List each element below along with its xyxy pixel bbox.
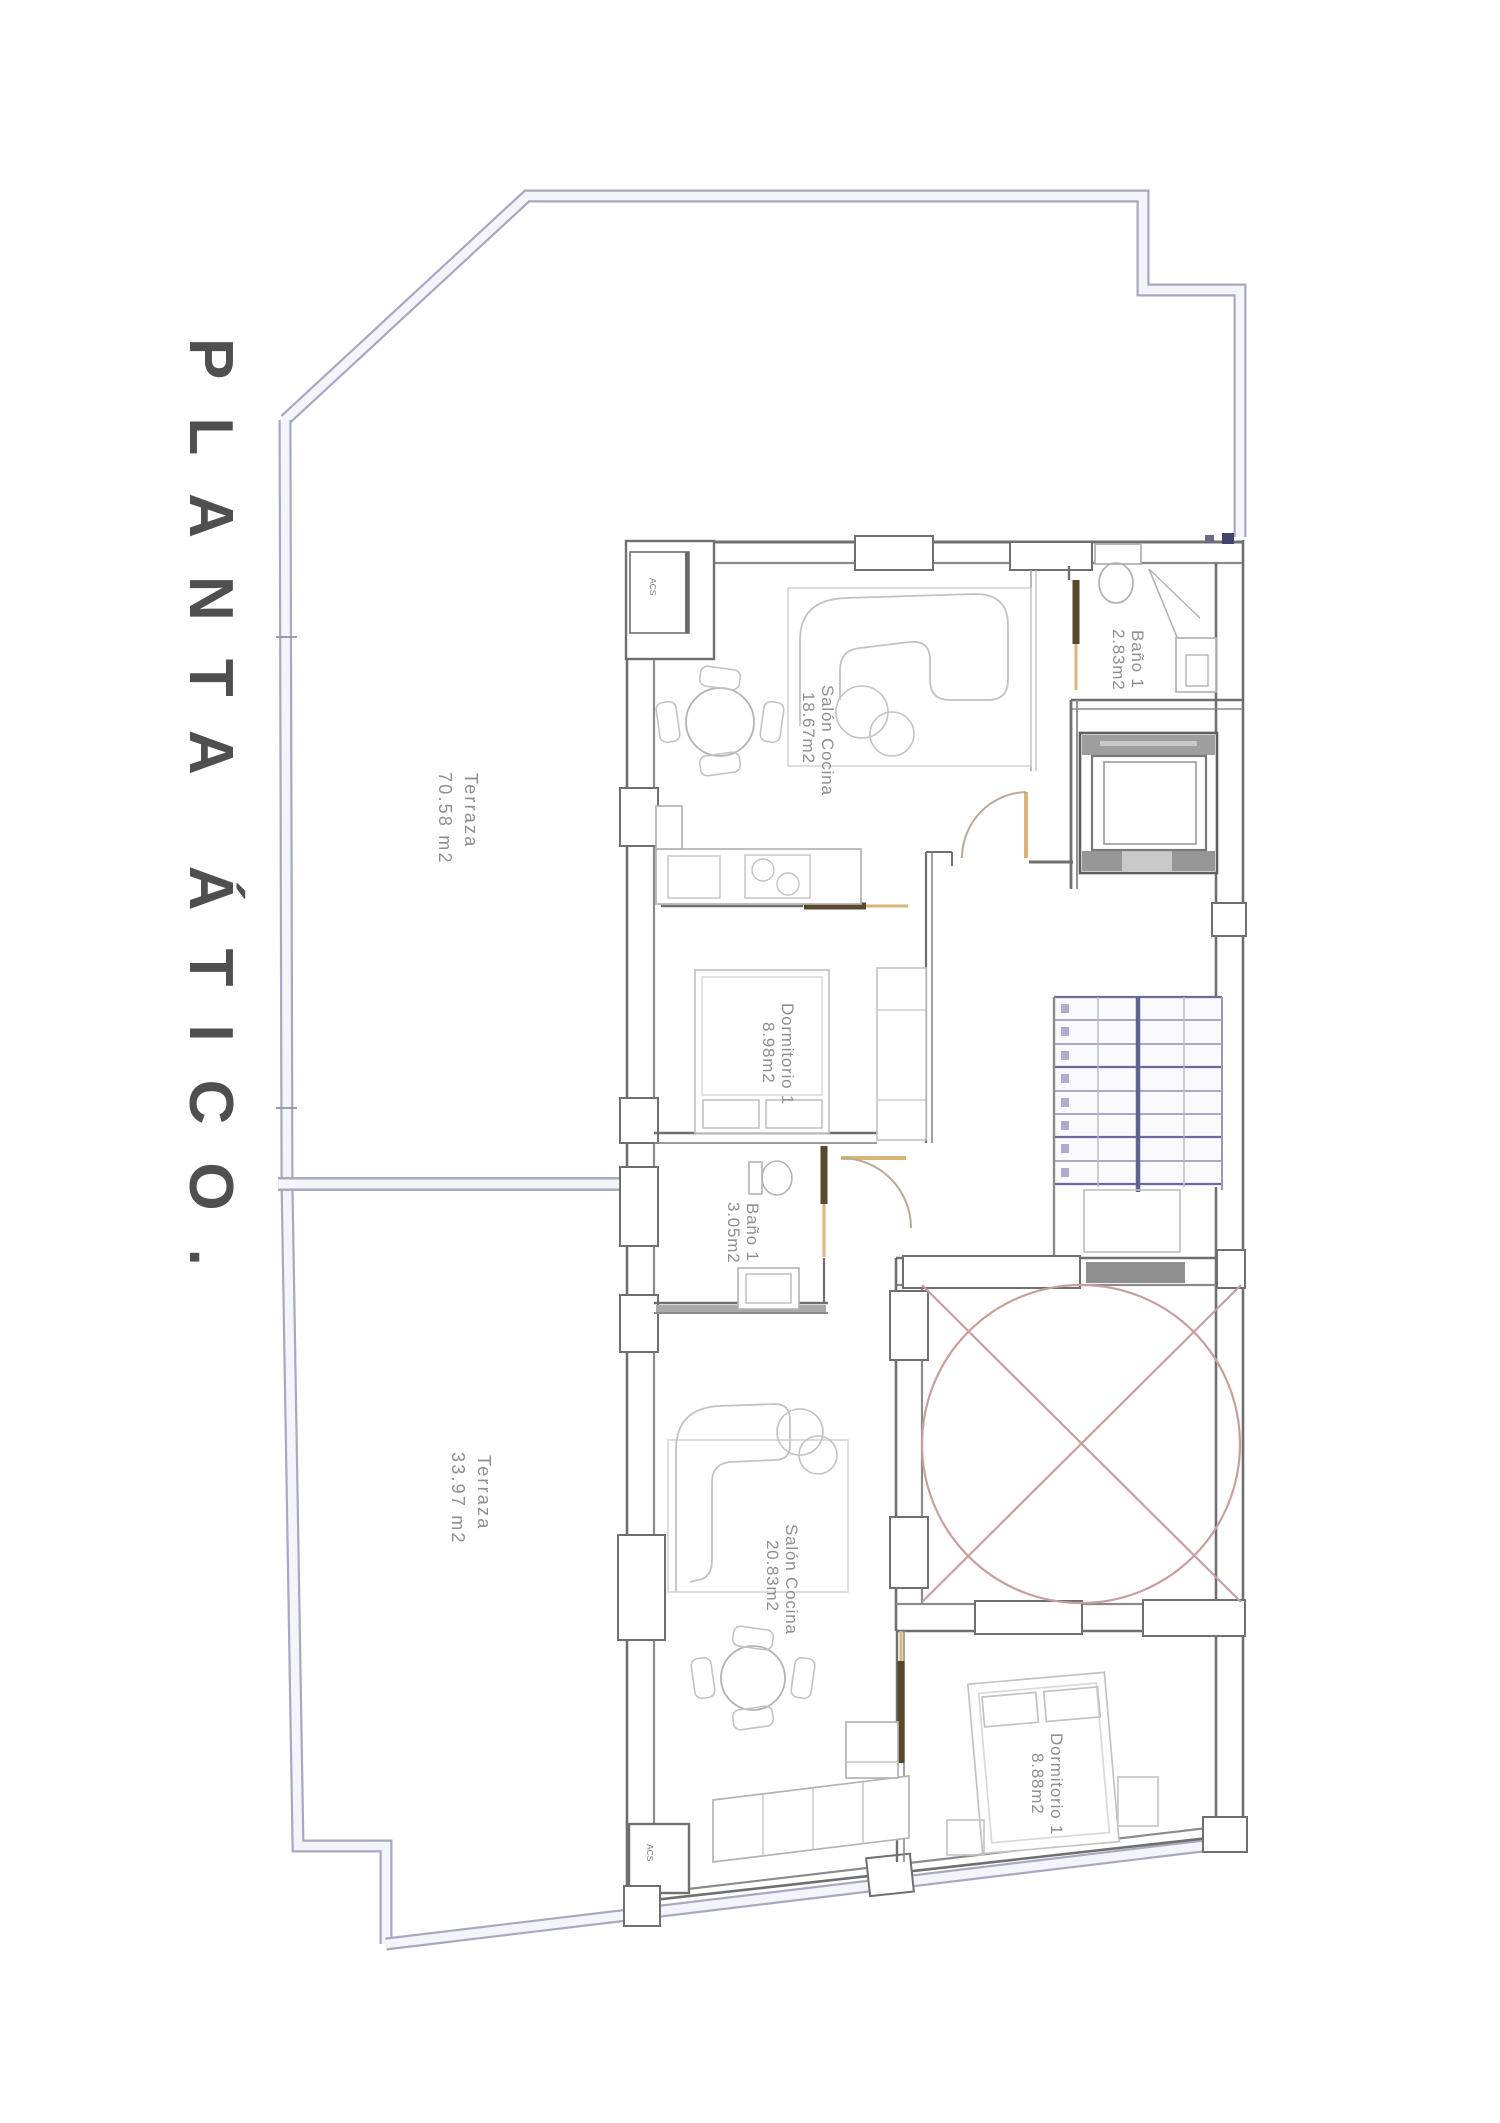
svg-text:Terraza: Terraza xyxy=(474,1455,494,1530)
svg-text:18.67m2: 18.67m2 xyxy=(799,692,818,764)
svg-text:8.88m2: 8.88m2 xyxy=(1028,1753,1047,1815)
svg-text:20.83m2: 20.83m2 xyxy=(763,1540,782,1612)
svg-text:8.98m2: 8.98m2 xyxy=(759,1022,778,1084)
svg-text:70.58 m2: 70.58 m2 xyxy=(435,772,455,865)
svg-text:Salón Cocina: Salón Cocina xyxy=(782,1524,801,1635)
svg-text:Baño 1: Baño 1 xyxy=(1128,630,1147,689)
svg-text:2.83m2: 2.83m2 xyxy=(1109,629,1128,691)
svg-text:Baño 1: Baño 1 xyxy=(743,1203,762,1262)
svg-text:Terraza: Terraza xyxy=(461,773,481,848)
svg-text:33.97 m2: 33.97 m2 xyxy=(448,1452,468,1545)
svg-text:PLANTA ÁTICO.: PLANTA ÁTICO. xyxy=(176,338,245,1304)
svg-text:Salón Cocina: Salón Cocina xyxy=(818,685,837,796)
svg-text:Dormitorio 1: Dormitorio 1 xyxy=(778,1003,797,1105)
svg-text:3.05m2: 3.05m2 xyxy=(724,1202,743,1264)
svg-text:ACS: ACS xyxy=(648,578,658,596)
svg-text:ACS: ACS xyxy=(645,1844,655,1862)
svg-text:Dormitorio 1: Dormitorio 1 xyxy=(1047,1733,1066,1835)
